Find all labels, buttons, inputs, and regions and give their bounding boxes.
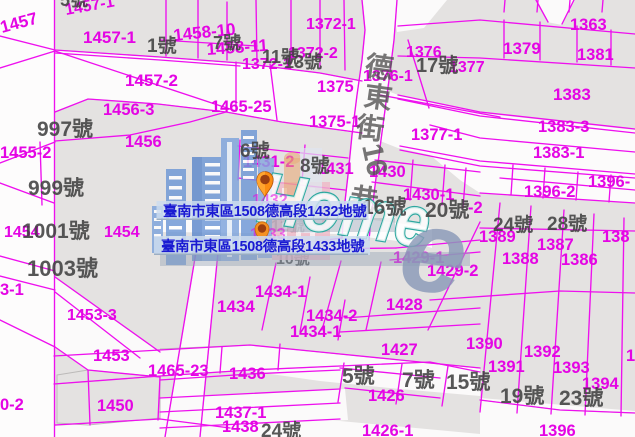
svg-text:13號: 13號	[284, 52, 322, 72]
svg-text:1388: 1388	[502, 250, 539, 268]
svg-text:1434-1: 1434-1	[255, 283, 306, 301]
svg-text:1454: 1454	[104, 224, 140, 241]
svg-text:1號: 1號	[147, 35, 177, 57]
svg-text:16號: 16號	[362, 196, 406, 219]
svg-text:1453: 1453	[93, 347, 130, 365]
svg-text:0-2: 0-2	[0, 396, 24, 414]
svg-text:24號: 24號	[493, 214, 533, 236]
svg-text:999號: 999號	[28, 177, 84, 200]
svg-text:5號: 5號	[342, 365, 375, 388]
svg-text:1434-1: 1434-1	[290, 323, 341, 341]
svg-text:1383: 1383	[553, 85, 591, 104]
svg-text:1372-1: 1372-1	[306, 16, 356, 33]
svg-text:5號: 5號	[60, 0, 88, 10]
svg-text:1396-: 1396-	[588, 173, 630, 191]
svg-text:1383-3: 1383-3	[538, 118, 589, 136]
svg-text:1465-25: 1465-25	[211, 98, 272, 116]
svg-text:1450: 1450	[97, 397, 134, 415]
svg-text:6號: 6號	[240, 140, 270, 162]
svg-text:1427: 1427	[381, 341, 418, 359]
svg-text:1396: 1396	[539, 422, 576, 437]
svg-text:1381: 1381	[577, 46, 614, 64]
svg-text:8號: 8號	[300, 155, 330, 177]
svg-text:1465-23: 1465-23	[148, 362, 209, 380]
svg-text:1390: 1390	[466, 335, 503, 353]
svg-text:1457-1: 1457-1	[83, 28, 136, 47]
svg-text:20號: 20號	[425, 199, 469, 222]
svg-text:1363: 1363	[570, 16, 607, 34]
svg-text:1379: 1379	[503, 39, 541, 58]
svg-text:東: 東	[362, 80, 394, 115]
svg-text:17號: 17號	[416, 53, 458, 77]
svg-text:997號: 997號	[37, 118, 93, 141]
svg-text:1001號: 1001號	[22, 220, 90, 243]
svg-text:1375-1: 1375-1	[309, 113, 360, 131]
svg-text:1457-2: 1457-2	[125, 71, 178, 90]
svg-text:1391: 1391	[488, 358, 525, 376]
svg-text:1456: 1456	[125, 133, 162, 151]
svg-text:1456-3: 1456-3	[103, 101, 154, 119]
svg-text:24號: 24號	[261, 420, 301, 437]
svg-text:7號: 7號	[402, 369, 435, 392]
svg-text:1396-2: 1396-2	[524, 183, 575, 201]
svg-text:15號: 15號	[446, 371, 490, 394]
svg-text:1438: 1438	[222, 418, 259, 436]
svg-text:139: 139	[626, 347, 635, 365]
svg-text:19號: 19號	[500, 385, 544, 408]
svg-text:7號: 7號	[213, 33, 241, 53]
svg-text:1434: 1434	[217, 297, 255, 316]
svg-text:3-1: 3-1	[0, 281, 24, 299]
svg-text:1426: 1426	[368, 387, 405, 405]
svg-text:1426-1: 1426-1	[362, 422, 413, 437]
svg-text:街: 街	[353, 110, 386, 146]
svg-text:臺南市東區1508德高段1433地號: 臺南市東區1508德高段1433地號	[161, 237, 365, 255]
svg-text:1383-1: 1383-1	[533, 144, 584, 162]
svg-text:1453-3: 1453-3	[67, 307, 117, 324]
svg-text:1377-1: 1377-1	[411, 126, 462, 144]
svg-text:1436: 1436	[229, 365, 266, 383]
svg-text:1003號: 1003號	[27, 256, 98, 281]
svg-text:1386: 1386	[561, 251, 598, 269]
svg-text:1455-2: 1455-2	[0, 144, 51, 162]
svg-text:28號: 28號	[547, 213, 587, 235]
svg-text:臺南市東區1508德高段1432地號: 臺南市東區1508德高段1432地號	[163, 202, 367, 220]
svg-text:1375: 1375	[317, 78, 354, 96]
svg-text:23號: 23號	[559, 387, 603, 410]
svg-text:138: 138	[602, 228, 630, 246]
